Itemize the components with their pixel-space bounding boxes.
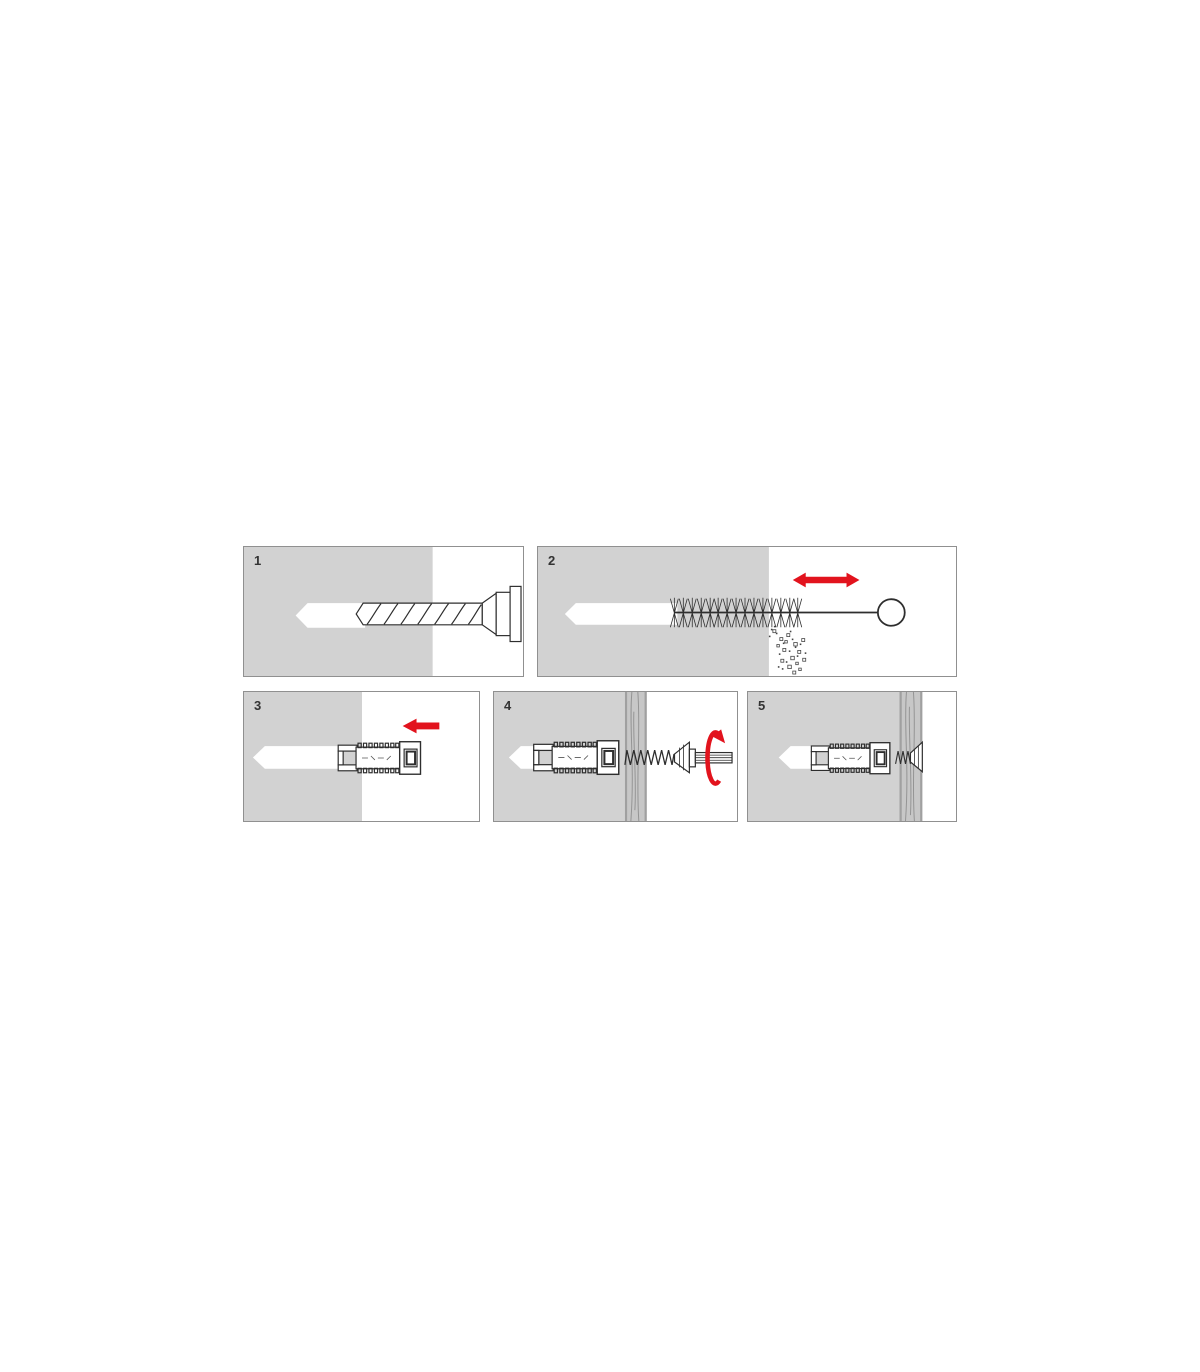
brush-ring-handle: [878, 599, 905, 626]
step-number: 1: [254, 553, 261, 568]
drilled-hole: [253, 746, 341, 769]
step-panel-4: 4: [493, 691, 738, 822]
step-number: 5: [758, 698, 765, 713]
instruction-sheet: 1 2: [0, 0, 1200, 1372]
drill-chuck: [482, 586, 521, 641]
double-arrow-icon: [793, 573, 860, 588]
screwdriver-bit: [689, 749, 732, 767]
arrow-left-icon: [403, 719, 440, 734]
drilled-hole: [296, 603, 366, 628]
drilled-hole: [565, 603, 677, 625]
step-number: 3: [254, 698, 261, 713]
step-panel-2: 2: [537, 546, 957, 677]
step-number: 4: [504, 698, 511, 713]
step-panel-3: 3: [243, 691, 480, 822]
dust-particles: [769, 626, 806, 674]
step-panel-5: 5: [747, 691, 957, 822]
step-panel-1: 1: [243, 546, 524, 677]
step-number: 2: [548, 553, 555, 568]
